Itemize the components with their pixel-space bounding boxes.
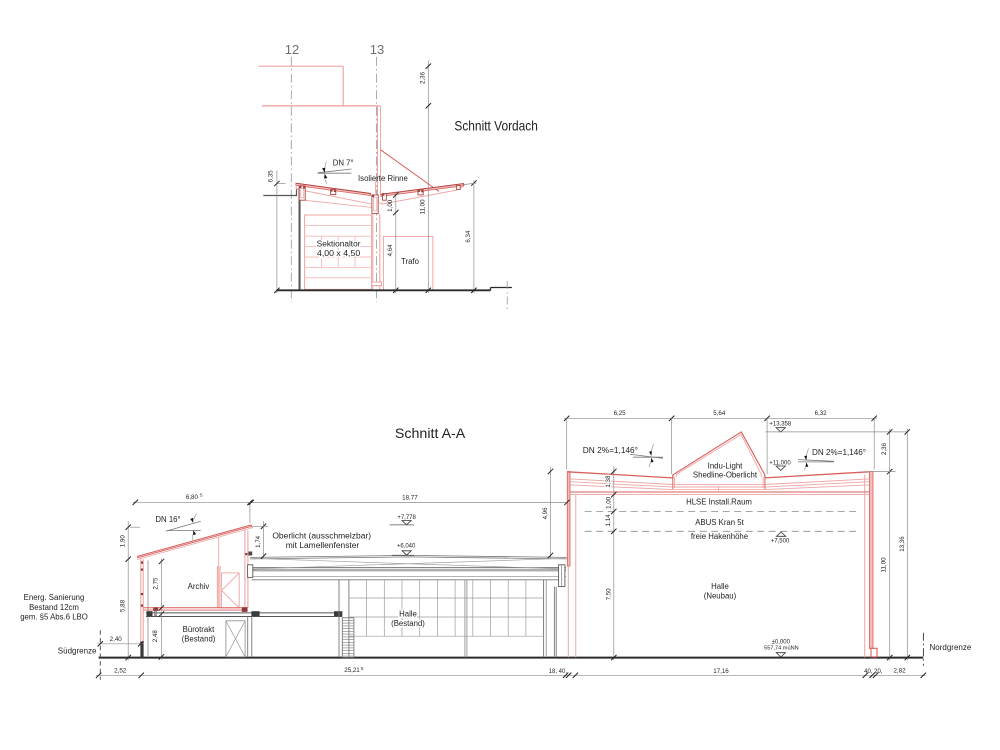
svg-text:11,00: 11,00 xyxy=(420,199,427,215)
svg-text:Energ. Sanierung: Energ. Sanierung xyxy=(24,593,85,602)
svg-text:ABUS Kran 5t: ABUS Kran 5t xyxy=(695,518,744,527)
svg-text:1,00: 1,00 xyxy=(387,199,394,212)
svg-text:+13,358: +13,358 xyxy=(769,421,792,427)
svg-text:5,88: 5,88 xyxy=(119,599,126,612)
svg-text:5: 5 xyxy=(361,666,364,671)
svg-text:freie Hakenhöhe: freie Hakenhöhe xyxy=(691,532,748,541)
svg-text:11,00: 11,00 xyxy=(881,557,888,573)
svg-text:(Neubau): (Neubau) xyxy=(704,592,737,601)
svg-text:mit Lamellenfenster: mit Lamellenfenster xyxy=(286,541,360,550)
svg-text:2,36: 2,36 xyxy=(420,71,427,84)
svg-text:13: 13 xyxy=(370,42,384,57)
svg-text:4,00 x 4,50: 4,00 x 4,50 xyxy=(317,249,361,258)
svg-text:Schnitt Vordach: Schnitt Vordach xyxy=(454,119,538,134)
svg-text:DN 16°: DN 16° xyxy=(155,515,180,524)
svg-text:Archiv: Archiv xyxy=(188,582,210,591)
svg-text:1,00: 1,00 xyxy=(605,496,612,509)
svg-text:5: 5 xyxy=(200,493,203,498)
svg-text:Halle: Halle xyxy=(711,582,729,591)
svg-text:6,34: 6,34 xyxy=(465,230,472,243)
svg-text:Schnitt A-A: Schnitt A-A xyxy=(395,426,466,441)
svg-text:4,64: 4,64 xyxy=(387,244,394,257)
svg-text:18,77: 18,77 xyxy=(402,494,418,501)
svg-text:4,96: 4,96 xyxy=(542,507,549,520)
svg-text:40, 20,: 40, 20, xyxy=(864,669,883,675)
svg-text:+6,040: +6,040 xyxy=(397,543,416,549)
svg-text:2,82: 2,82 xyxy=(893,667,906,674)
svg-text:2,48: 2,48 xyxy=(152,630,159,643)
svg-text:(Bestand): (Bestand) xyxy=(182,634,216,643)
svg-text:557,74 müNN: 557,74 müNN xyxy=(764,646,799,652)
svg-text:6,35: 6,35 xyxy=(268,170,275,183)
svg-text:(Bestand): (Bestand) xyxy=(391,619,425,628)
svg-text:6,80: 6,80 xyxy=(186,494,199,501)
svg-text:13,36: 13,36 xyxy=(899,536,906,552)
svg-text:2,52: 2,52 xyxy=(114,668,127,675)
svg-text:+7,500: +7,500 xyxy=(771,539,790,545)
svg-text:2,36: 2,36 xyxy=(881,442,888,455)
svg-text:DN 7°: DN 7° xyxy=(333,159,354,168)
svg-text:Sektionaltor: Sektionaltor xyxy=(317,240,361,249)
svg-text:2,75: 2,75 xyxy=(153,577,160,590)
svg-text:Südgrenze: Südgrenze xyxy=(58,647,97,656)
svg-text:1,74: 1,74 xyxy=(255,535,262,548)
svg-text:6,32: 6,32 xyxy=(815,410,828,417)
svg-text:Shedline-Oberlicht: Shedline-Oberlicht xyxy=(693,470,758,479)
svg-text:2,40: 2,40 xyxy=(110,636,123,643)
svg-text:±0,000: ±0,000 xyxy=(772,639,791,645)
svg-text:Trafo: Trafo xyxy=(401,257,420,266)
svg-text:HLSE Install.Raum: HLSE Install.Raum xyxy=(686,497,752,506)
svg-text:DN 2%=1,146°: DN 2%=1,146° xyxy=(583,446,638,455)
svg-text:Bestand 12cm: Bestand 12cm xyxy=(29,603,79,612)
svg-text:7,50: 7,50 xyxy=(605,588,612,601)
svg-text:1,38: 1,38 xyxy=(605,475,612,488)
svg-text:17,16: 17,16 xyxy=(713,668,729,675)
svg-text:5,64: 5,64 xyxy=(713,410,726,417)
svg-text:Indu-Light: Indu-Light xyxy=(708,461,744,470)
svg-text:25,21: 25,21 xyxy=(344,667,360,674)
svg-text:1,90: 1,90 xyxy=(119,535,126,548)
svg-text:gem. §5 Abs.6 LBO: gem. §5 Abs.6 LBO xyxy=(20,613,88,622)
svg-text:12: 12 xyxy=(285,42,299,57)
svg-text:6,25: 6,25 xyxy=(614,410,627,417)
svg-text:18, 40,: 18, 40, xyxy=(549,669,568,675)
svg-text:DN 2%=1,146°: DN 2%=1,146° xyxy=(812,448,866,457)
svg-text:Oberlicht (ausschmelzbar): Oberlicht (ausschmelzbar) xyxy=(272,532,371,541)
svg-text:Nordgrenze: Nordgrenze xyxy=(930,643,972,652)
svg-text:Isolierte Rinne: Isolierte Rinne xyxy=(358,174,408,183)
svg-text:1,14: 1,14 xyxy=(605,514,612,527)
svg-text:Bürotrakt: Bürotrakt xyxy=(183,625,215,634)
svg-text:Halle: Halle xyxy=(399,609,417,618)
